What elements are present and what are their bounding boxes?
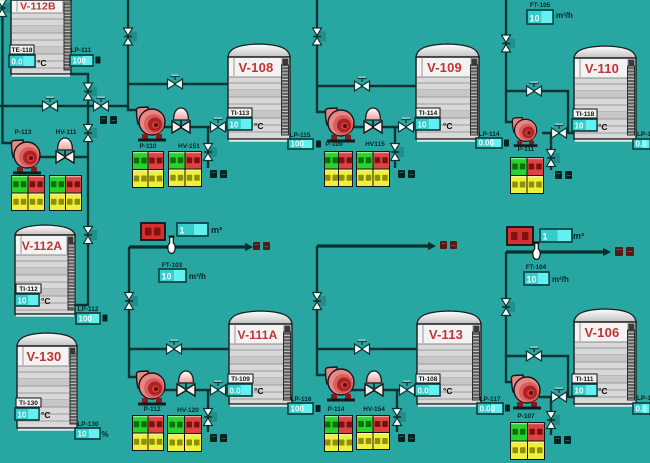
- svg-text:LP-112: LP-112: [78, 306, 99, 313]
- svg-text:10: 10: [527, 275, 537, 285]
- svg-text:10: 10: [18, 411, 27, 420]
- svg-text:0.0: 0.0: [636, 405, 648, 414]
- svg-text:°C: °C: [443, 121, 453, 131]
- svg-text:LP-117: LP-117: [480, 396, 501, 403]
- svg-text:100: 100: [291, 405, 305, 414]
- svg-text:P-107: P-107: [517, 413, 535, 420]
- svg-text:100: 100: [73, 57, 87, 66]
- svg-text:°C: °C: [41, 410, 51, 420]
- svg-text:0.0: 0.0: [636, 140, 648, 149]
- svg-text:m³/h: m³/h: [552, 275, 569, 284]
- svg-text:°C: °C: [598, 122, 608, 132]
- svg-text:10: 10: [162, 272, 172, 282]
- svg-text:FT-104: FT-104: [526, 264, 547, 271]
- svg-text:TI-109: TI-109: [231, 376, 250, 383]
- svg-text:10: 10: [575, 122, 584, 131]
- svg-text:10: 10: [575, 387, 584, 396]
- svg-text:°C: °C: [254, 386, 264, 396]
- svg-text:LP-1: LP-1: [637, 395, 650, 402]
- svg-text:HV115: HV115: [365, 141, 385, 148]
- svg-text:%: %: [101, 430, 108, 439]
- svg-text:HV-154: HV-154: [363, 406, 385, 413]
- svg-text:100: 100: [291, 140, 305, 149]
- svg-text:LP-130: LP-130: [77, 421, 99, 428]
- svg-text:TI-108: TI-108: [419, 376, 438, 383]
- svg-text:P-109: P-109: [325, 141, 343, 148]
- svg-text:0.00: 0.00: [479, 139, 495, 148]
- svg-text:0.0: 0.0: [418, 387, 430, 396]
- svg-text:°C: °C: [443, 386, 453, 396]
- svg-text:°C: °C: [254, 121, 264, 131]
- svg-text:10: 10: [418, 121, 427, 130]
- svg-text:m³/h: m³/h: [556, 11, 573, 20]
- svg-text:V-112B: V-112B: [20, 1, 56, 13]
- svg-text:10: 10: [18, 297, 27, 306]
- svg-text:V-130: V-130: [27, 349, 62, 364]
- svg-text:V-106: V-106: [585, 325, 620, 340]
- svg-text:TI-118: TI-118: [576, 111, 595, 118]
- svg-text:P-111: P-111: [518, 146, 535, 153]
- svg-text:°C: °C: [598, 386, 608, 396]
- svg-text:1: 1: [543, 232, 548, 242]
- svg-text:0.00: 0.00: [480, 405, 496, 414]
- svg-text:FT-103: FT-103: [162, 262, 183, 269]
- svg-text:TI-113: TI-113: [231, 110, 250, 117]
- svg-text:m³: m³: [211, 225, 222, 235]
- svg-text:LP-1: LP-1: [637, 131, 650, 138]
- svg-text:TI-111: TI-111: [575, 376, 593, 383]
- svg-text:V-111A: V-111A: [238, 328, 278, 342]
- svg-text:FT-105: FT-105: [530, 2, 551, 9]
- svg-text:HV-120: HV-120: [177, 407, 199, 414]
- svg-text:HV-151: HV-151: [178, 143, 200, 150]
- svg-text:LP-116: LP-116: [291, 396, 312, 403]
- svg-text:P-110: P-110: [140, 143, 157, 150]
- svg-text:100: 100: [79, 315, 93, 324]
- svg-text:0.0: 0.0: [12, 58, 24, 67]
- svg-text:LP-114: LP-114: [479, 131, 500, 138]
- svg-text:°C: °C: [41, 296, 51, 306]
- svg-text:TI-130: TI-130: [19, 400, 38, 407]
- svg-text:TI-114: TI-114: [419, 110, 438, 117]
- svg-text:m³: m³: [573, 231, 584, 241]
- svg-text:P-113: P-113: [15, 129, 32, 136]
- svg-text:10: 10: [530, 14, 540, 24]
- svg-text:P-114: P-114: [328, 406, 345, 413]
- svg-text:TE-118: TE-118: [12, 47, 33, 54]
- svg-text:V-108: V-108: [239, 60, 274, 75]
- svg-text:m³/h: m³/h: [189, 272, 206, 281]
- svg-text:P-112: P-112: [144, 406, 161, 413]
- svg-text:V-110: V-110: [585, 61, 619, 76]
- svg-text:LP-111: LP-111: [71, 47, 92, 54]
- svg-text:0.0: 0.0: [230, 387, 242, 396]
- svg-text:10: 10: [78, 430, 87, 439]
- svg-text:°C: °C: [37, 58, 47, 68]
- svg-text:V-112A: V-112A: [22, 239, 63, 253]
- svg-text:V-109: V-109: [427, 60, 462, 75]
- svg-text:10: 10: [230, 121, 239, 130]
- svg-text:V-113: V-113: [429, 327, 463, 342]
- svg-text:LP-115: LP-115: [290, 132, 311, 139]
- svg-text:TI-112: TI-112: [19, 286, 38, 293]
- svg-text:1: 1: [180, 226, 185, 236]
- svg-text:HV-111: HV-111: [56, 129, 77, 136]
